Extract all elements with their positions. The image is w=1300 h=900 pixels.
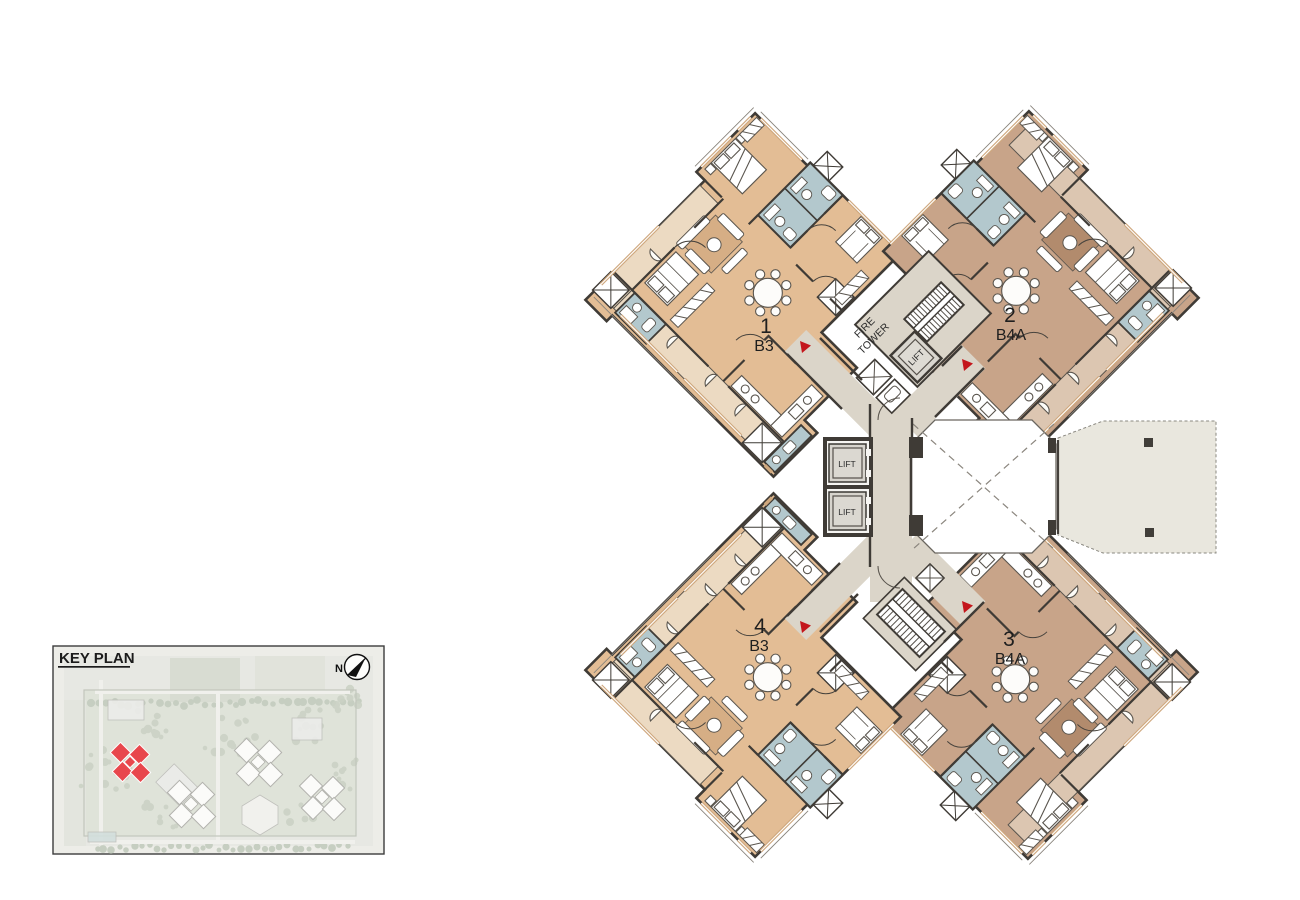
svg-text:B4A: B4A	[996, 327, 1027, 344]
svg-text:3: 3	[1003, 628, 1015, 651]
svg-text:B3: B3	[749, 638, 769, 655]
svg-text:2: 2	[1004, 304, 1016, 327]
svg-text:N: N	[335, 663, 343, 675]
svg-text:1: 1	[760, 315, 772, 338]
svg-text:B3: B3	[754, 338, 774, 355]
svg-text:4: 4	[754, 615, 766, 638]
svg-text:LIFT: LIFT	[838, 507, 855, 517]
svg-text:LIFT: LIFT	[838, 459, 855, 469]
svg-text:KEY PLAN: KEY PLAN	[59, 650, 135, 667]
svg-text:B4A: B4A	[995, 651, 1026, 668]
